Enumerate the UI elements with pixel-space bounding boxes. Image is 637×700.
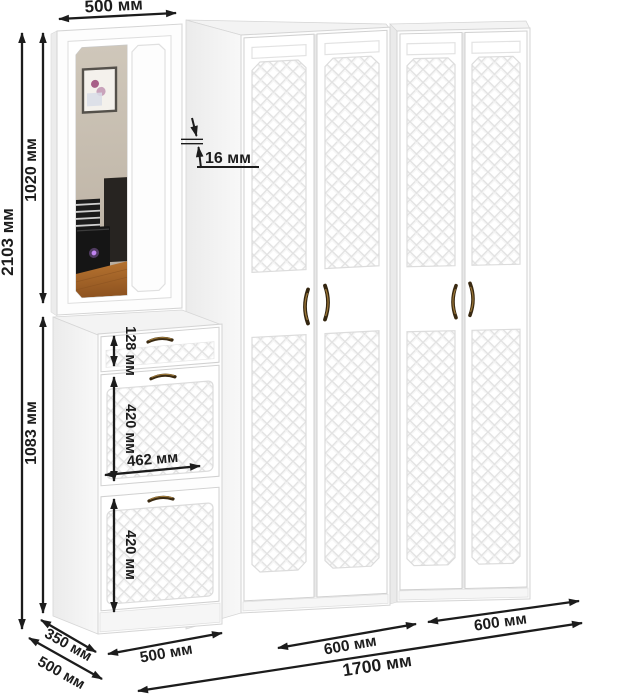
wardrobe-right (390, 21, 530, 604)
door-upper-lattice-panel (252, 60, 306, 273)
mirror-cabinet-side-face (51, 31, 57, 316)
wardrobe-right-front (397, 28, 530, 602)
furniture-diagram: 500 мм 2103 мм 1020 мм 1083 мм 16 мм 128… (0, 0, 637, 700)
mirror-cabinet-front (57, 24, 182, 315)
dim-drawer-height-label: 128 мм (122, 326, 138, 376)
dim-lower-flap-label: 420 мм (122, 530, 138, 580)
shoe-cabinet-side-face (53, 317, 98, 634)
dim-thickness-label: 16 мм (205, 150, 251, 167)
door-lower-lattice-panel (472, 329, 520, 564)
door-upper-lattice-panel (407, 58, 455, 267)
wardrobe-left-front (241, 27, 390, 613)
door-upper-lattice-panel (325, 56, 379, 269)
dim-lower-height-label: 1083 мм (23, 401, 40, 465)
mirror-reflection (76, 45, 128, 298)
dim-upper-height-label: 1020 мм (23, 138, 40, 202)
shoe-cabinet-front (98, 324, 222, 634)
dim-upper-flap-label: 420 мм (122, 404, 138, 454)
wardrobe-right-side-face (390, 24, 397, 604)
diagram-canvas: 500 мм 2103 мм 1020 мм 1083 мм 16 мм 128… (0, 0, 637, 700)
mirror-door-stile-panel (132, 44, 165, 292)
door-lower-lattice-panel (325, 331, 379, 569)
door-upper-lattice-panel (472, 56, 520, 265)
door-lower-lattice-panel (252, 335, 306, 573)
dim-total-width-label: 1700 мм (341, 650, 413, 680)
mirror-cabinet (51, 24, 182, 316)
dim-shoe-width-label: 500 мм (139, 641, 194, 667)
dim-total-height-label: 2103 мм (0, 208, 17, 276)
door-lower-lattice-panel (407, 331, 455, 566)
